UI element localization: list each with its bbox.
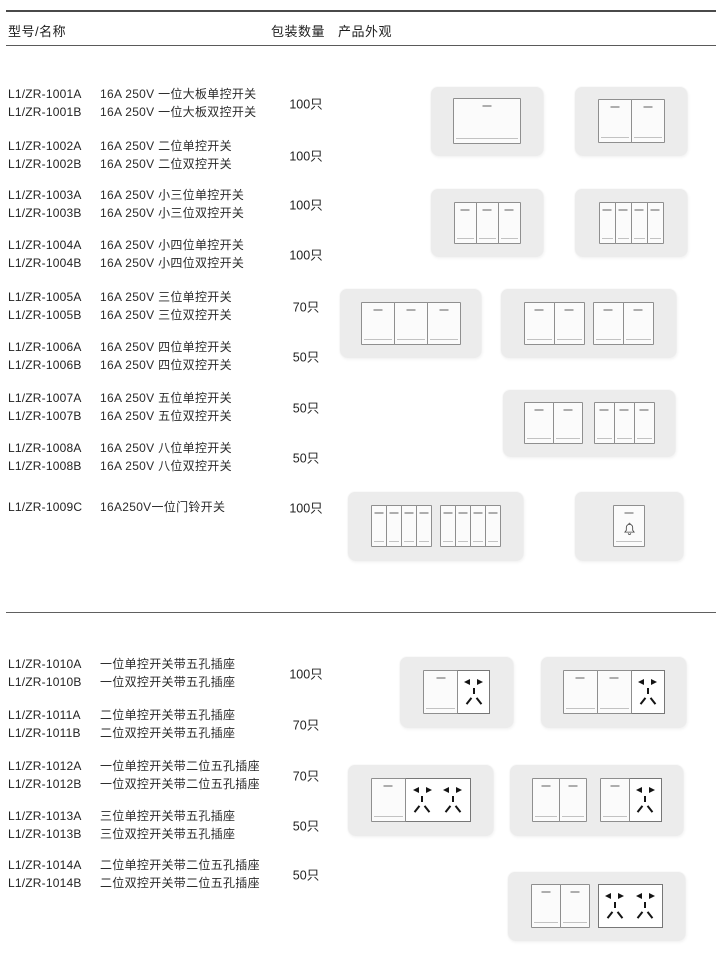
switch-rocker — [386, 505, 402, 547]
product-image-switch-5gang — [503, 390, 675, 456]
pack-qty: 70只 — [270, 766, 342, 785]
switch-rocker — [597, 670, 632, 714]
pack-qty: 50只 — [270, 448, 342, 467]
five-hole-socket — [629, 778, 662, 822]
header-underline — [6, 45, 716, 46]
model-code: L1/ZR-1009C — [8, 498, 100, 516]
section-divider — [6, 612, 716, 613]
model-code: L1/ZR-1012B — [8, 775, 100, 793]
product-row-1004: L1/ZR-1004A16A 250V 小四位单控开关 L1/ZR-1004B1… — [8, 236, 428, 272]
switch-rocker — [524, 302, 555, 345]
socket-pins-icon — [439, 781, 467, 819]
product-row-1001: L1/ZR-1001A16A 250V 一位大板单控开关 L1/ZR-1001B… — [8, 85, 428, 121]
pack-qty: 100只 — [270, 146, 342, 165]
product-row-1007: L1/ZR-1007A16A 250V 五位单控开关 L1/ZR-1007B16… — [8, 389, 428, 425]
product-image-switch-1gang-large — [431, 87, 543, 155]
model-desc: 二位单控开关带五孔插座 — [100, 706, 235, 724]
switch-rocker — [524, 402, 554, 444]
model-code: L1/ZR-1003A — [8, 186, 100, 204]
model-desc: 16A 250V 小四位双控开关 — [100, 254, 244, 272]
model-desc: 二位双控开关带五孔插座 — [100, 724, 235, 742]
switch-rocker — [553, 402, 583, 444]
model-desc: 16A 250V 四位双控开关 — [100, 356, 232, 374]
product-row-1003: L1/ZR-1003A16A 250V 小三位单控开关 L1/ZR-1003B1… — [8, 186, 428, 222]
switch-rocker — [476, 202, 499, 244]
model-desc: 16A 250V 五位单控开关 — [100, 389, 232, 407]
model-code: L1/ZR-1007B — [8, 407, 100, 425]
model-desc: 一位单控开关带五孔插座 — [100, 655, 235, 673]
switch-rocker — [401, 505, 417, 547]
switch-rocker — [455, 505, 471, 547]
pack-qty: 100只 — [270, 245, 342, 264]
switch-rocker — [559, 778, 587, 822]
model-desc: 二位单控开关带二位五孔插座 — [100, 856, 260, 874]
switch-rocker — [593, 302, 624, 345]
model-code: L1/ZR-1011A — [8, 706, 100, 724]
product-row-1002: L1/ZR-1002A16A 250V 二位单控开关 L1/ZR-1002B16… — [8, 137, 428, 173]
switch-rocker — [614, 402, 635, 444]
switch-rocker — [423, 670, 458, 714]
pack-qty: 70只 — [270, 297, 342, 316]
column-header-model: 型号/名称 — [8, 21, 66, 40]
switch-rocker — [440, 505, 456, 547]
bell-icon — [622, 522, 637, 537]
five-hole-socket — [457, 670, 490, 714]
model-code: L1/ZR-1003B — [8, 204, 100, 222]
model-desc: 16A 250V 一位大板单控开关 — [100, 85, 256, 103]
column-header-qty: 包装数量 — [271, 21, 325, 40]
top-rule — [6, 10, 716, 12]
pack-qty: 100只 — [270, 664, 342, 683]
product-row-1014: L1/ZR-1014A二位单控开关带二位五孔插座 L1/ZR-1014B二位双控… — [8, 856, 428, 892]
model-desc: 16A 250V 二位单控开关 — [100, 137, 232, 155]
model-desc: 16A 250V 小四位单控开关 — [100, 236, 244, 254]
model-code: L1/ZR-1014A — [8, 856, 100, 874]
product-image-switch-4gang-grouped — [501, 289, 676, 357]
switch-rocker — [371, 505, 387, 547]
model-code: L1/ZR-1008A — [8, 439, 100, 457]
model-desc: 16A 250V 八位单控开关 — [100, 439, 232, 457]
pack-qty: 50只 — [270, 347, 342, 366]
switch-rocker — [394, 302, 428, 345]
product-image-switch-2gang-with-double-5hole-socket — [508, 872, 685, 940]
model-code: L1/ZR-1008B — [8, 457, 100, 475]
double-five-hole-socket — [598, 884, 663, 928]
pack-qty: 100只 — [270, 94, 342, 113]
switch-rocker — [485, 505, 501, 547]
socket-pins-icon — [460, 673, 488, 711]
switch-rocker — [470, 505, 486, 547]
catalog-page: 型号/名称 包装数量 产品外观 L1/ZR-1001A16A 250V 一位大板… — [0, 0, 722, 955]
model-code: L1/ZR-1002A — [8, 137, 100, 155]
model-desc: 16A 250V 二位双控开关 — [100, 155, 232, 173]
model-code: L1/ZR-1007A — [8, 389, 100, 407]
model-code: L1/ZR-1005B — [8, 306, 100, 324]
switch-rocker — [560, 884, 590, 928]
switch-rocker — [631, 202, 648, 244]
model-code: L1/ZR-1013B — [8, 825, 100, 843]
socket-pins-icon — [631, 781, 659, 819]
model-code: L1/ZR-1002B — [8, 155, 100, 173]
model-desc: 16A 250V 三位单控开关 — [100, 288, 232, 306]
model-desc: 16A250V一位门铃开关 — [100, 498, 225, 516]
socket-pins-icon — [408, 781, 436, 819]
pack-qty: 50只 — [270, 865, 342, 884]
product-row-1011: L1/ZR-1011A二位单控开关带五孔插座 L1/ZR-1011B二位双控开关… — [8, 706, 428, 742]
switch-rocker — [634, 402, 655, 444]
model-code: L1/ZR-1006A — [8, 338, 100, 356]
model-code: L1/ZR-1014B — [8, 874, 100, 892]
model-code: L1/ZR-1011B — [8, 724, 100, 742]
model-desc: 16A 250V 四位单控开关 — [100, 338, 232, 356]
column-header-appearance: 产品外观 — [338, 21, 392, 40]
switch-rocker — [594, 402, 615, 444]
model-desc: 二位双控开关带二位五孔插座 — [100, 874, 260, 892]
model-code: L1/ZR-1001B — [8, 103, 100, 121]
product-row-1010: L1/ZR-1010A一位单控开关带五孔插座 L1/ZR-1010B一位双控开关… — [8, 655, 428, 691]
switch-rocker — [615, 202, 632, 244]
product-image-switch-8gang — [348, 492, 523, 560]
model-code: L1/ZR-1005A — [8, 288, 100, 306]
switch-rocker — [454, 202, 477, 244]
switch-rocker — [498, 202, 521, 244]
doorbell-button — [613, 505, 645, 547]
model-desc: 三位单控开关带五孔插座 — [100, 807, 235, 825]
switch-rocker — [453, 98, 521, 144]
model-desc: 16A 250V 五位双控开关 — [100, 407, 232, 425]
product-image-doorbell-switch — [575, 492, 683, 560]
switch-rocker — [647, 202, 664, 244]
model-code: L1/ZR-1013A — [8, 807, 100, 825]
model-desc: 16A 250V 小三位双控开关 — [100, 204, 244, 222]
pack-qty: 50只 — [270, 816, 342, 835]
socket-pins-icon — [631, 887, 659, 925]
model-code: L1/ZR-1004A — [8, 236, 100, 254]
model-code: L1/ZR-1006B — [8, 356, 100, 374]
product-image-switch-1gang-with-double-5hole-socket — [348, 765, 493, 835]
model-desc: 16A 250V 三位双控开关 — [100, 306, 232, 324]
product-image-switch-3gang-with-5hole-socket — [510, 765, 683, 835]
switch-rocker — [361, 302, 395, 345]
switch-rocker — [598, 99, 632, 143]
switch-rocker — [554, 302, 585, 345]
switch-rocker — [631, 99, 665, 143]
product-image-switch-3gang — [340, 289, 481, 357]
pack-qty: 50只 — [270, 398, 342, 417]
model-desc: 16A 250V 小三位单控开关 — [100, 186, 244, 204]
product-image-switch-2gang-with-5hole-socket — [541, 657, 686, 727]
switch-rocker — [427, 302, 461, 345]
five-hole-socket — [631, 670, 665, 714]
model-desc: 一位双控开关带五孔插座 — [100, 673, 235, 691]
switch-rocker — [600, 778, 630, 822]
pack-qty: 100只 — [270, 195, 342, 214]
model-code: L1/ZR-1012A — [8, 757, 100, 775]
model-desc: 16A 250V 八位双控开关 — [100, 457, 232, 475]
product-row-1008: L1/ZR-1008A16A 250V 八位单控开关 L1/ZR-1008B16… — [8, 439, 428, 475]
pack-qty: 70只 — [270, 715, 342, 734]
switch-rocker — [531, 884, 561, 928]
socket-pins-icon — [634, 673, 662, 711]
switch-rocker — [599, 202, 616, 244]
switch-rocker — [416, 505, 432, 547]
product-image-switch-2gang — [575, 87, 687, 155]
model-desc: 16A 250V 一位大板双控开关 — [100, 103, 256, 121]
model-desc: 一位双控开关带二位五孔插座 — [100, 775, 260, 793]
product-image-switch-1gang-with-5hole-socket — [400, 657, 513, 727]
model-code: L1/ZR-1004B — [8, 254, 100, 272]
product-image-switch-3gang-small — [431, 189, 543, 256]
switch-rocker — [563, 670, 598, 714]
model-code: L1/ZR-1010B — [8, 673, 100, 691]
product-image-switch-4gang-small — [575, 189, 687, 256]
pack-qty: 100只 — [270, 498, 342, 517]
model-code: L1/ZR-1010A — [8, 655, 100, 673]
model-code: L1/ZR-1001A — [8, 85, 100, 103]
switch-rocker — [532, 778, 560, 822]
socket-pins-icon — [601, 887, 629, 925]
model-desc: 三位双控开关带五孔插座 — [100, 825, 235, 843]
model-desc: 一位单控开关带二位五孔插座 — [100, 757, 260, 775]
switch-rocker — [371, 778, 406, 822]
double-five-hole-socket — [405, 778, 471, 822]
switch-rocker — [623, 302, 654, 345]
